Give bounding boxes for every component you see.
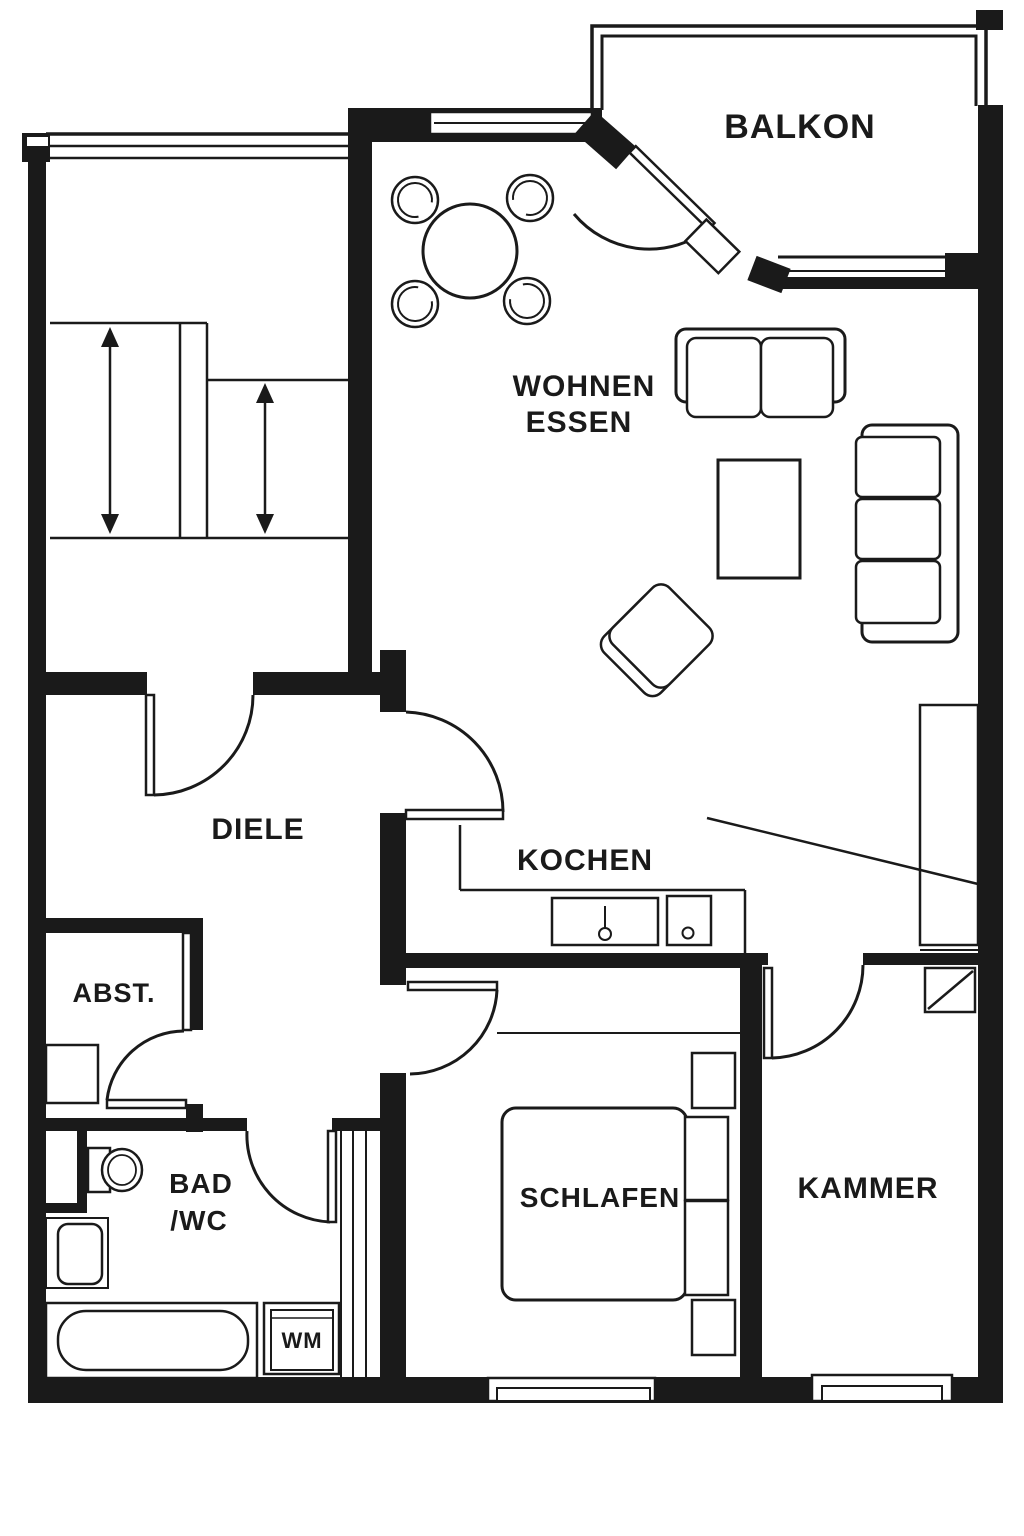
stove-icon	[667, 896, 711, 945]
room-label-diele: DIELE	[211, 813, 304, 846]
bed-headboard	[685, 1117, 728, 1200]
room-label-kammer: KAMMER	[798, 1172, 939, 1205]
toilet-icon	[88, 1148, 142, 1192]
wall-bad-top-left	[77, 1118, 247, 1131]
appliance-label-wm: WM	[281, 1328, 322, 1353]
sink-icon	[552, 898, 658, 945]
dining-chair-icon	[504, 278, 550, 324]
wall-kammer-top-right	[863, 953, 978, 965]
wall-diele-kochen-lower	[380, 813, 406, 985]
kammer-shaft-icon	[925, 968, 975, 1012]
wall-kochen-schlafen	[403, 953, 748, 968]
sofa-2seat-icon	[676, 329, 845, 417]
room-label-essen: ESSEN	[526, 406, 633, 439]
balcony-parapet-window	[778, 253, 978, 289]
floor-plan: BALKON WOHNEN ESSEN DIELE KOCHEN ABST. B…	[0, 0, 1024, 1536]
room-label-abst: ABST.	[72, 978, 155, 1008]
door-leaf	[146, 695, 154, 795]
wall-shaft-bottom	[37, 1203, 87, 1213]
dining-table-icon	[423, 204, 517, 298]
wall-stair-wohnen-divider	[348, 140, 372, 672]
wall-shaft-column	[77, 1131, 87, 1203]
wall-abst-top	[46, 918, 203, 933]
window-schlafen	[488, 1378, 655, 1401]
wall-shaft-top	[46, 1118, 87, 1131]
room-label-schlafen: SCHLAFEN	[520, 1182, 680, 1213]
balcony-parapet-end-block	[945, 253, 978, 289]
sofa-3seat-icon	[856, 425, 958, 642]
wall-cant-lower	[752, 268, 786, 281]
bathtub-icon	[46, 1303, 257, 1378]
room-label-kochen: KOCHEN	[517, 844, 653, 877]
wall-notch-topleft	[27, 137, 48, 146]
dining-chair-icon	[392, 281, 438, 327]
room-label-bad: BAD	[169, 1168, 233, 1199]
nightstand-icon	[692, 1053, 735, 1108]
room-label-balkon: BALKON	[724, 108, 875, 146]
door-leaf	[408, 982, 497, 990]
door-leaf	[328, 1131, 336, 1222]
nightstand-icon	[692, 1300, 735, 1355]
wall-kammer-top-left	[748, 953, 768, 965]
wall-diele-kochen-upper	[380, 650, 406, 712]
abst-shelf-icon	[46, 1045, 98, 1103]
bed-headboard	[685, 1201, 728, 1295]
window-kammer	[812, 1375, 952, 1401]
dining-chair-icon	[392, 177, 438, 223]
door-frame	[183, 933, 191, 1030]
coffee-table-icon	[718, 460, 800, 578]
window-wohnen-top	[430, 112, 592, 134]
wall-right	[978, 105, 1003, 1403]
washbasin-icon	[46, 1218, 108, 1288]
wall-schlafen-kammer	[740, 965, 762, 1377]
room-label-wohnen: WOHNEN	[513, 370, 656, 403]
door-leaf	[107, 1100, 186, 1108]
room-label-wc: /WC	[170, 1205, 227, 1236]
wall-bad-top-right	[332, 1118, 406, 1131]
door-leaf	[406, 810, 503, 819]
wall-diele-top-left	[46, 672, 147, 695]
door-leaf	[764, 968, 772, 1058]
dining-chair-icon	[507, 175, 553, 221]
